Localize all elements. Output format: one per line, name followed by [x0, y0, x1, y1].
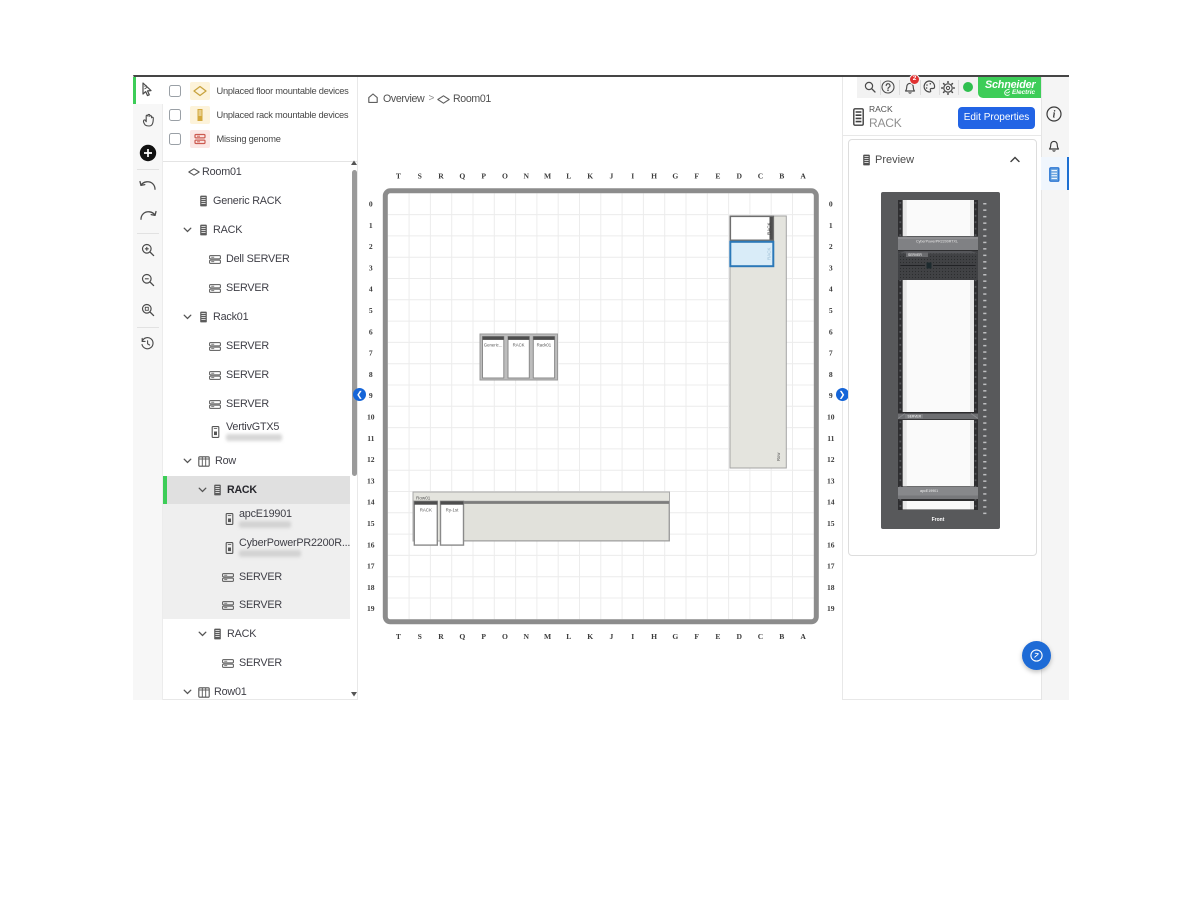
svg-text:L: L [566, 171, 571, 180]
svg-text:9: 9 [369, 391, 373, 400]
svg-text:9: 9 [829, 391, 833, 400]
svg-text:8: 8 [369, 370, 373, 379]
svg-text:P: P [481, 632, 486, 641]
svg-text:12: 12 [827, 455, 835, 464]
svg-text:6: 6 [829, 327, 833, 336]
svg-text:RACK: RACK [767, 222, 772, 235]
svg-text:M: M [544, 632, 551, 641]
svg-text:C: C [758, 171, 763, 180]
svg-text:19: 19 [827, 604, 835, 613]
svg-text:R: R [438, 632, 444, 641]
svg-text:T: T [396, 171, 401, 180]
svg-text:13: 13 [367, 476, 375, 485]
svg-text:1: 1 [829, 221, 833, 230]
svg-text:O: O [502, 632, 508, 641]
svg-text:A: A [800, 632, 806, 641]
svg-text:apcE19901: apcE19901 [920, 489, 938, 493]
svg-text:8: 8 [829, 370, 833, 379]
svg-text:I: I [631, 171, 634, 180]
svg-text:B: B [779, 171, 784, 180]
svg-text:13: 13 [827, 476, 835, 485]
svg-text:S: S [418, 632, 422, 641]
svg-text:11: 11 [367, 434, 374, 443]
svg-text:2: 2 [369, 242, 373, 251]
svg-text:15: 15 [827, 519, 835, 528]
svg-text:16: 16 [367, 540, 375, 549]
svg-text:N: N [524, 171, 530, 180]
svg-text:E: E [715, 632, 720, 641]
svg-text:5: 5 [829, 306, 833, 315]
svg-text:7: 7 [829, 349, 833, 358]
svg-text:14: 14 [367, 498, 375, 507]
svg-text:Row: Row [776, 452, 781, 461]
svg-text:A: A [800, 171, 806, 180]
svg-text:N: N [524, 632, 530, 641]
svg-text:E: E [715, 171, 720, 180]
svg-text:16: 16 [827, 540, 835, 549]
svg-text:J: J [610, 171, 614, 180]
svg-text:14: 14 [827, 498, 835, 507]
svg-text:T: T [396, 632, 401, 641]
svg-text:G: G [672, 632, 678, 641]
svg-text:2: 2 [829, 242, 833, 251]
svg-text:K: K [587, 171, 593, 180]
svg-text:R: R [438, 171, 444, 180]
svg-text:S: S [418, 171, 422, 180]
svg-text:12: 12 [367, 455, 375, 464]
svg-text:0: 0 [829, 199, 833, 208]
svg-text:17: 17 [367, 562, 375, 571]
svg-text:17: 17 [827, 562, 835, 571]
svg-text:Q: Q [459, 632, 465, 641]
svg-text:F: F [694, 171, 699, 180]
svg-text:P: P [481, 171, 486, 180]
svg-text:1: 1 [369, 221, 373, 230]
svg-text:11: 11 [827, 434, 834, 443]
svg-text:7: 7 [369, 349, 373, 358]
svg-text:O: O [502, 171, 508, 180]
svg-text:Q: Q [459, 171, 465, 180]
svg-text:K: K [587, 632, 593, 641]
svg-text:M: M [544, 171, 551, 180]
svg-text:3: 3 [369, 263, 373, 272]
svg-text:10: 10 [367, 412, 375, 421]
svg-text:B: B [779, 632, 784, 641]
svg-text:RACK: RACK [513, 343, 525, 348]
svg-text:SERVER: SERVER [908, 415, 922, 419]
svg-text:Row01: Row01 [416, 496, 431, 501]
svg-text:0: 0 [369, 199, 373, 208]
svg-text:Rack01: Rack01 [537, 343, 552, 348]
svg-text:H: H [651, 632, 657, 641]
svg-text:CyberPowerPR2200RTXL: CyberPowerPR2200RTXL [916, 240, 958, 244]
svg-text:C: C [758, 632, 763, 641]
svg-text:6: 6 [369, 327, 373, 336]
svg-text:RACK: RACK [420, 508, 432, 513]
svg-text:G: G [672, 171, 678, 180]
svg-text:3: 3 [829, 263, 833, 272]
svg-text:H: H [651, 171, 657, 180]
svg-text:I: I [631, 632, 634, 641]
svg-text:Ry-1st: Ry-1st [446, 508, 459, 513]
svg-text:SERVER: SERVER [908, 253, 922, 257]
svg-text:D: D [737, 632, 743, 641]
svg-text:4: 4 [369, 285, 373, 294]
svg-text:F: F [694, 632, 699, 641]
svg-text:19: 19 [367, 604, 375, 613]
svg-text:D: D [737, 171, 743, 180]
svg-text:10: 10 [827, 412, 835, 421]
svg-text:L: L [566, 632, 571, 641]
svg-text:4: 4 [829, 285, 833, 294]
svg-text:15: 15 [367, 519, 375, 528]
svg-text:RACK: RACK [767, 247, 772, 260]
svg-text:J: J [610, 632, 614, 641]
svg-text:18: 18 [367, 583, 375, 592]
svg-text:i: i [1053, 110, 1056, 121]
svg-text:5: 5 [369, 306, 373, 315]
svg-text:Generic...: Generic... [484, 343, 503, 348]
svg-text:18: 18 [827, 583, 835, 592]
svg-text:Front: Front [932, 517, 945, 523]
